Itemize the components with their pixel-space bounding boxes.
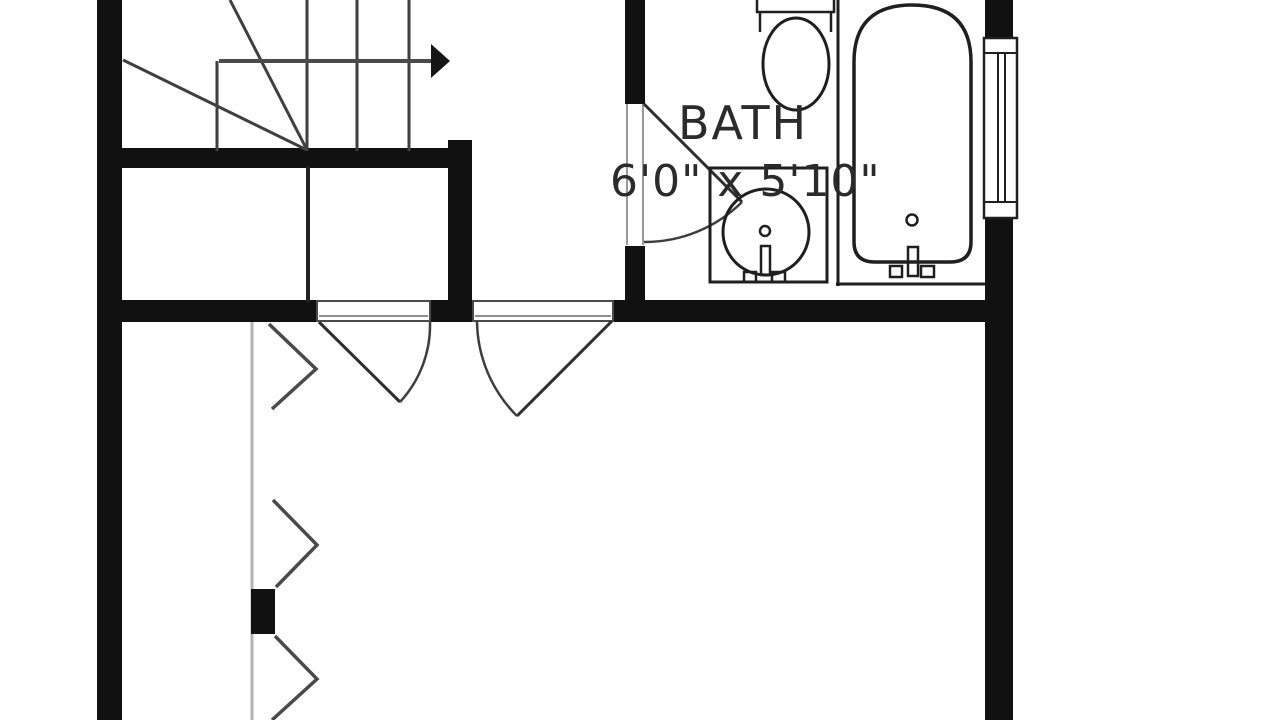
sink-drain bbox=[760, 226, 770, 236]
tub-drain bbox=[907, 215, 918, 226]
room-name-label: BATH bbox=[678, 100, 808, 146]
walls bbox=[97, 0, 1013, 720]
right-exterior-wall-lower bbox=[985, 216, 1013, 720]
toilet bbox=[757, 0, 834, 110]
floor-plan: BATH 6'0" x 5'10" bbox=[0, 0, 1280, 720]
stair-winder-line bbox=[123, 60, 307, 150]
interior-swing-door-right bbox=[473, 301, 613, 416]
closet-wall-stub bbox=[251, 589, 275, 634]
tub-faucet-handle bbox=[890, 266, 902, 277]
window-frame bbox=[984, 38, 1017, 218]
winder-staircase bbox=[123, 0, 450, 151]
right-exterior-wall-upper bbox=[985, 0, 1013, 40]
bath-entry-wall-upper bbox=[625, 0, 645, 104]
bifold-door-leaf bbox=[272, 636, 317, 720]
middle-room-divider-wall bbox=[306, 166, 310, 302]
interior-swing-door-left bbox=[317, 301, 430, 402]
door-swing-arc bbox=[400, 322, 430, 402]
sink-faucet bbox=[761, 246, 770, 275]
left-exterior-wall bbox=[97, 0, 122, 720]
stair-winder-line bbox=[230, 0, 307, 150]
stair-bottom-wall bbox=[122, 148, 472, 168]
door-leaf bbox=[517, 321, 612, 416]
main-wall-right bbox=[613, 300, 1013, 322]
door-swing-arc bbox=[644, 202, 742, 242]
floor-plan-drawing bbox=[0, 0, 1280, 720]
main-wall-left bbox=[97, 300, 317, 322]
tub-outline bbox=[854, 5, 971, 262]
bifold-door-leaf bbox=[269, 324, 316, 409]
door-panel bbox=[473, 301, 613, 321]
room-dimensions-label: 6'0" x 5'10" bbox=[610, 160, 881, 204]
double-hung-window bbox=[984, 38, 1017, 218]
bifold-door-leaf bbox=[273, 500, 317, 587]
toilet-tank bbox=[757, 0, 834, 12]
door-leaf bbox=[319, 322, 400, 402]
door-panel bbox=[317, 301, 430, 321]
hall-divider-wall bbox=[448, 140, 472, 322]
bathtub bbox=[836, 0, 985, 286]
main-wall-mid bbox=[430, 300, 475, 322]
door-swing-arc bbox=[477, 321, 517, 416]
stair-direction-arrowhead-icon bbox=[431, 44, 450, 78]
bifold-closet-doors bbox=[251, 322, 317, 720]
tub-faucet-handle bbox=[921, 266, 934, 277]
